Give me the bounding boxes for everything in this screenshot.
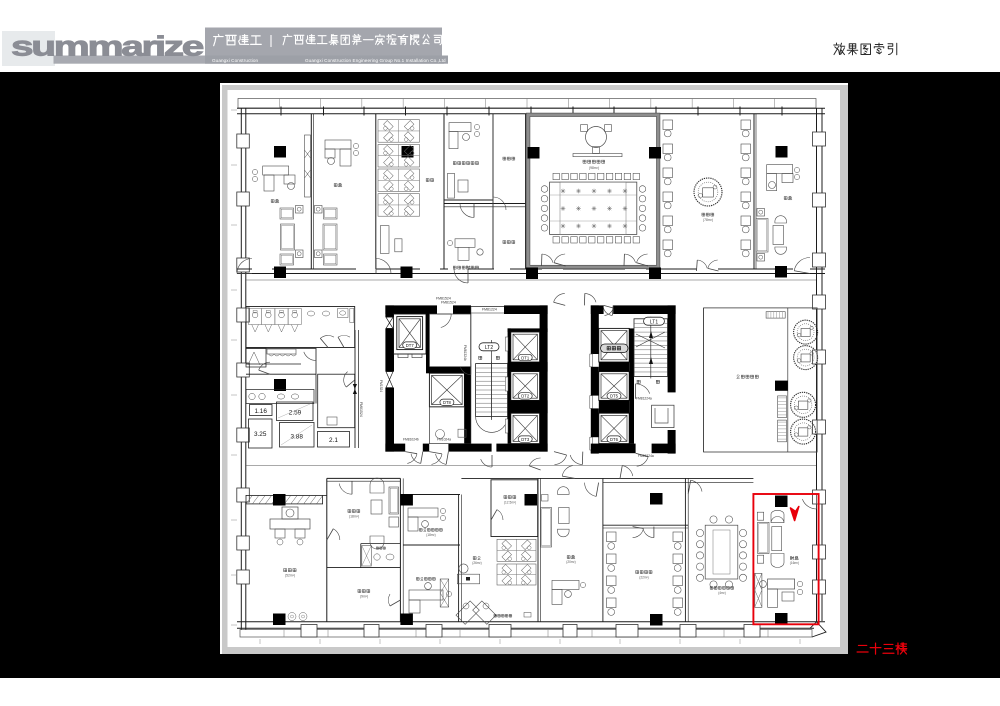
svg-text:(22m²): (22m²): [639, 576, 648, 580]
svg-text:(18m²): (18m²): [349, 515, 359, 519]
svg-text:DT6: DT6: [610, 437, 619, 442]
svg-text:FM81524: FM81524: [359, 402, 363, 417]
svg-text:DT5: DT5: [610, 394, 619, 399]
svg-text:Guangxi Construction: Guangxi Construction: [212, 58, 259, 63]
svg-text:DT7: DT7: [406, 343, 415, 348]
svg-text:(98m²): (98m²): [589, 166, 599, 170]
svg-text:FM81324b: FM81324b: [463, 345, 467, 361]
svg-text:DT2: DT2: [521, 394, 530, 399]
svg-text:(9m²): (9m²): [360, 595, 368, 599]
svg-text:(52m²): (52m²): [285, 574, 295, 578]
svg-text:FM81224: FM81224: [482, 308, 497, 312]
svg-text:(12.5m²): (12.5m²): [504, 501, 516, 505]
svg-text:DT1: DT1: [521, 355, 530, 360]
svg-text:FM1524: FM1524: [379, 380, 383, 392]
svg-text:summarize: summarize: [11, 31, 204, 62]
svg-text:DT3: DT3: [521, 437, 530, 442]
svg-text:(78m²): (78m²): [703, 218, 713, 222]
svg-text:Guangxi Construction Engineeri: Guangxi Construction Engineering Group N…: [305, 58, 446, 63]
svg-text:2.1: 2.1: [329, 437, 338, 444]
svg-text:1.16: 1.16: [254, 408, 267, 415]
svg-text:(18m²): (18m²): [426, 533, 435, 537]
svg-text:(26m²): (26m²): [472, 561, 481, 565]
svg-text:LT2: LT2: [485, 345, 493, 351]
svg-text:FM1024a: FM1024a: [437, 438, 451, 442]
svg-text:FM81524: FM81524: [441, 301, 456, 305]
svg-text:LT1: LT1: [650, 320, 658, 326]
svg-text:FM81224a: FM81224a: [636, 397, 652, 401]
svg-text:(16m²): (16m²): [790, 561, 799, 565]
svg-text:(4m²): (4m²): [718, 591, 726, 595]
svg-text:3.25: 3.25: [254, 431, 267, 438]
svg-text:(20m²): (20m²): [566, 560, 575, 564]
svg-text:FM81024b: FM81024b: [403, 438, 419, 442]
svg-text:FM81224a: FM81224a: [638, 454, 654, 458]
svg-text:DT8: DT8: [443, 400, 452, 405]
svg-text:FM81524: FM81524: [436, 297, 451, 301]
